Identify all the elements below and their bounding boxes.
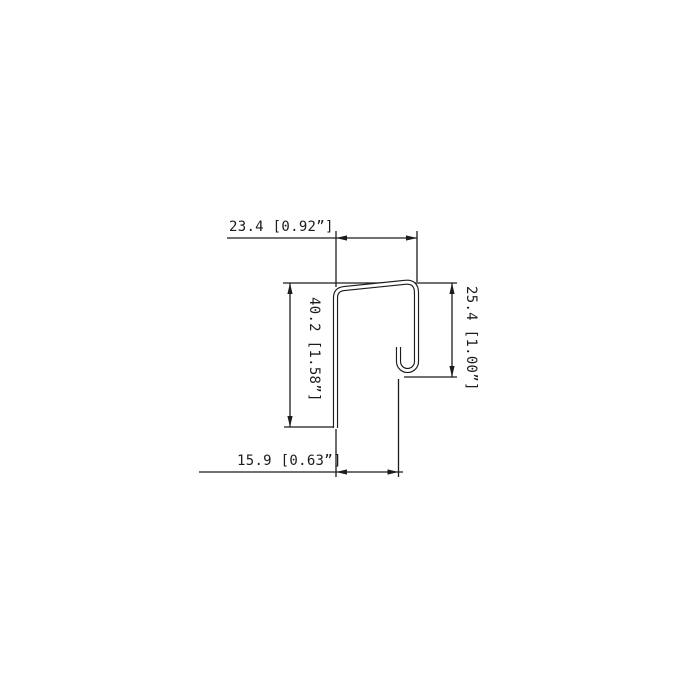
arrow-right-top [449,283,454,294]
dim-left-height-label: 40.2 [1.58”] [306,297,321,402]
dim-right-height-label: 25.4 [1.00”] [463,286,478,391]
arrow-left-bottom [287,416,292,427]
dim-top-width-label: 23.4 [0.92”] [229,220,334,235]
arrow-bottom-left [336,469,347,474]
arrow-bottom-right [388,469,399,474]
arrow-right-bottom [449,366,454,377]
profile-material-inner [336,282,417,428]
profile-material-outer [336,282,417,428]
profile-outline [336,282,417,428]
dim-bottom-width-label: 15.9 [0.63”] [237,454,342,469]
profile-dimension-diagram [0,0,700,700]
arrow-top-right [406,235,417,240]
arrow-left-top [287,283,292,294]
technical-drawing-canvas: 23.4 [0.92”] 15.9 [0.63”] 40.2 [1.58”] 2… [0,0,700,700]
arrow-top-left [336,235,347,240]
